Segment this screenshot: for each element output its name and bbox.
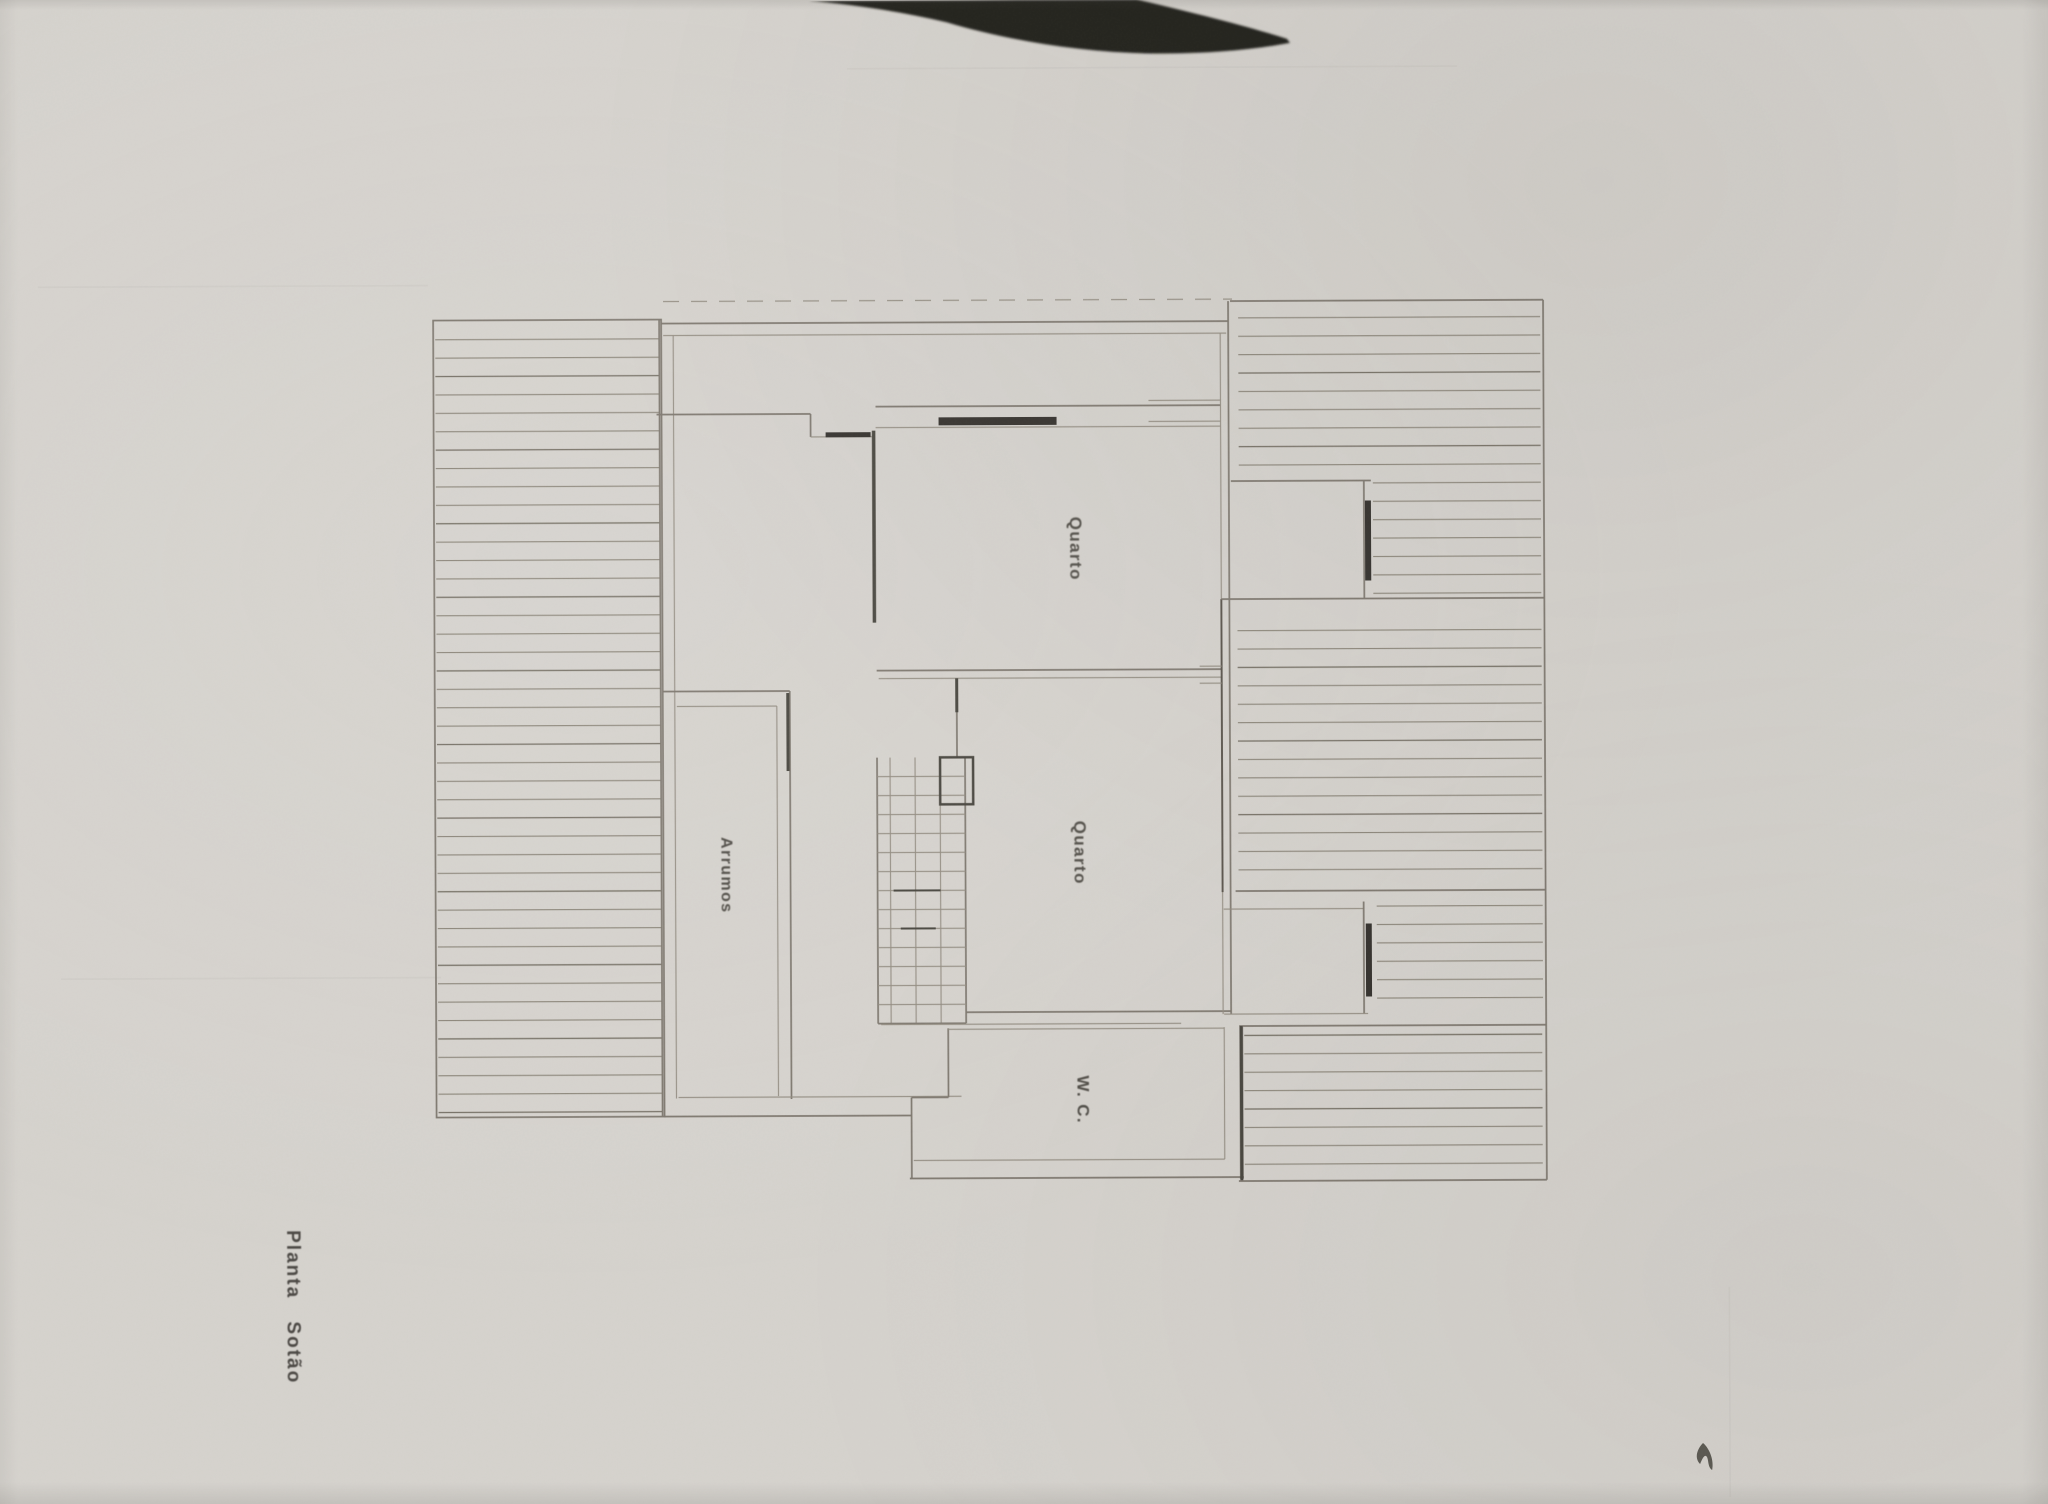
room-label-quarto-middle: Quarto xyxy=(1069,821,1089,885)
paper-grain xyxy=(0,0,2048,1504)
room-label-wc: W. C. xyxy=(1072,1075,1092,1124)
floor-plan-scan: Quarto Quarto W. C. Arrumos Planta Sotão xyxy=(0,0,2048,1504)
plan-title: Planta Sotão xyxy=(281,1230,304,1384)
scanned-page: Quarto Quarto W. C. Arrumos Planta Sotão xyxy=(0,0,2048,1504)
floor-plan-svg xyxy=(0,0,2048,1504)
room-label-arrumos: Arrumos xyxy=(716,837,734,914)
room-label-quarto-top: Quarto xyxy=(1065,517,1085,581)
